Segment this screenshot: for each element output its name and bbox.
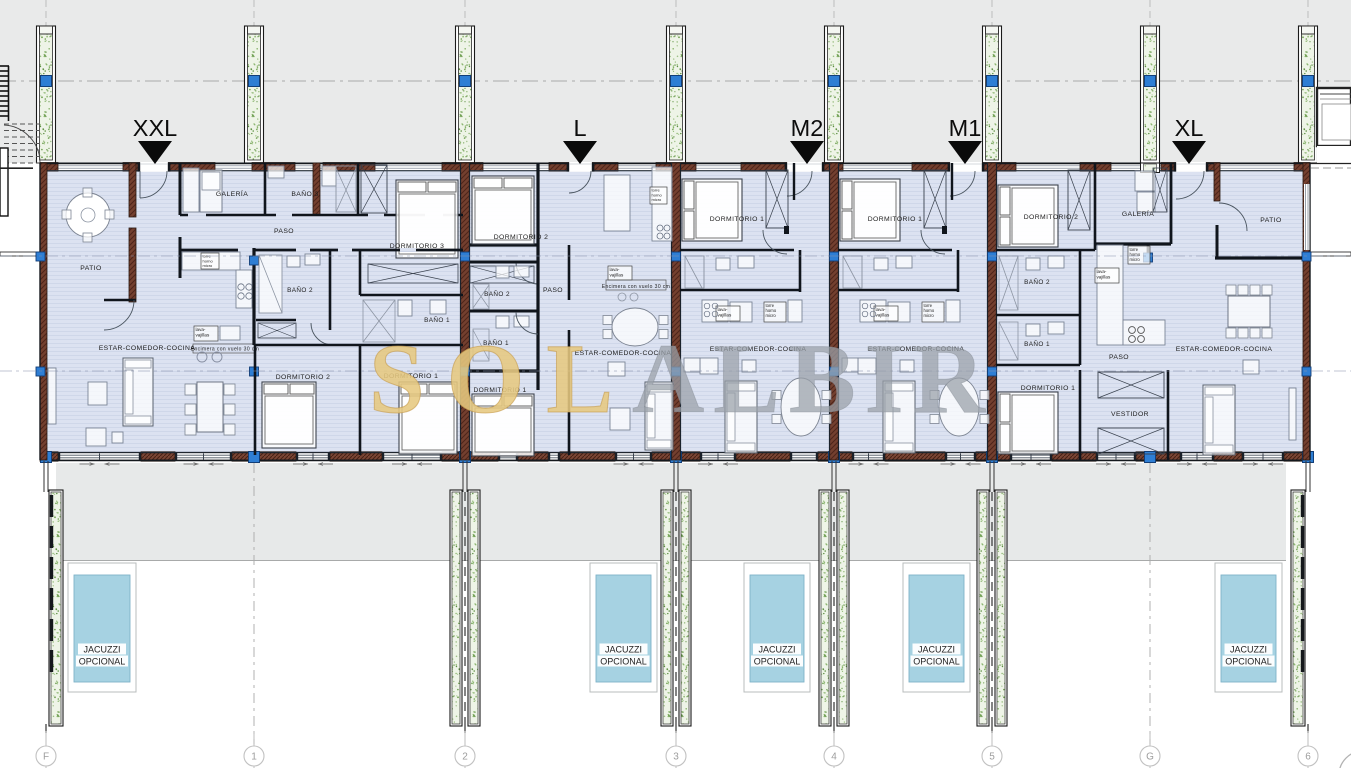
svg-text:L: L xyxy=(573,115,586,141)
svg-text:PATIO: PATIO xyxy=(1260,217,1281,224)
svg-text:DORMITORIO 1: DORMITORIO 1 xyxy=(1021,385,1076,392)
svg-text:6: 6 xyxy=(1305,752,1311,763)
svg-text:3: 3 xyxy=(673,752,679,763)
svg-text:DORMITORIO 2: DORMITORIO 2 xyxy=(1024,214,1079,221)
svg-text:BAÑO 2: BAÑO 2 xyxy=(484,289,510,298)
svg-text:G: G xyxy=(1146,752,1154,763)
svg-text:JACUZZI: JACUZZI xyxy=(605,645,642,655)
svg-text:5: 5 xyxy=(989,752,995,763)
svg-text:Encimera con vuelo 30 cm: Encimera con vuelo 30 cm xyxy=(602,284,671,290)
svg-text:XL: XL xyxy=(1175,115,1204,141)
svg-text:PATIO: PATIO xyxy=(80,265,101,272)
svg-text:lava-: lava- xyxy=(610,267,620,272)
svg-text:1: 1 xyxy=(251,752,257,763)
svg-text:XXL: XXL xyxy=(133,115,177,141)
svg-text:lava-: lava- xyxy=(196,327,206,332)
svg-text:DORMITORIO 2: DORMITORIO 2 xyxy=(494,234,549,241)
svg-text:ESTAR-COMEDOR-COCINA: ESTAR-COMEDOR-COCINA xyxy=(1176,346,1273,353)
svg-text:micro: micro xyxy=(766,313,777,318)
svg-text:F: F xyxy=(43,752,49,763)
svg-text:2: 2 xyxy=(462,752,468,763)
svg-text:M1: M1 xyxy=(949,115,982,141)
svg-text:vajillas: vajillas xyxy=(876,313,890,318)
svg-text:DORMITORIO 2: DORMITORIO 2 xyxy=(276,374,331,381)
svg-text:vajillas: vajillas xyxy=(718,313,732,318)
svg-text:PASO: PASO xyxy=(543,287,563,294)
svg-text:Encimera con vuelo 30 cm: Encimera con vuelo 30 cm xyxy=(191,347,260,353)
svg-text:micro: micro xyxy=(203,263,214,268)
svg-text:vajillas: vajillas xyxy=(1097,275,1111,280)
svg-text:micro: micro xyxy=(924,313,935,318)
svg-text:OPCIONAL: OPCIONAL xyxy=(600,657,647,667)
svg-text:4: 4 xyxy=(831,752,837,763)
svg-text:VESTIDOR: VESTIDOR xyxy=(1111,411,1149,418)
svg-text:M2: M2 xyxy=(791,115,824,141)
svg-text:micro: micro xyxy=(652,197,663,202)
svg-text:micro: micro xyxy=(1130,257,1141,262)
svg-text:BAÑO 2: BAÑO 2 xyxy=(287,285,313,294)
svg-text:PASO: PASO xyxy=(274,228,294,235)
svg-text:vajillas: vajillas xyxy=(196,333,210,338)
svg-text:GALERÍA: GALERÍA xyxy=(1122,209,1154,218)
svg-text:DORMITORIO 1: DORMITORIO 1 xyxy=(710,216,765,223)
svg-text:lava-: lava- xyxy=(1097,269,1107,274)
svg-text:JACUZZI: JACUZZI xyxy=(759,645,796,655)
svg-text:BAÑO 2: BAÑO 2 xyxy=(1024,277,1050,286)
svg-text:GALERÍA: GALERÍA xyxy=(216,189,248,198)
svg-text:vajillas: vajillas xyxy=(610,273,624,278)
svg-text:BAÑO 1: BAÑO 1 xyxy=(1024,339,1050,348)
svg-text:OPCIONAL: OPCIONAL xyxy=(913,657,960,667)
svg-text:BAÑO 3: BAÑO 3 xyxy=(291,189,318,198)
svg-text:lava-: lava- xyxy=(718,307,728,312)
svg-text:ESTAR-COMEDOR-COCINA: ESTAR-COMEDOR-COCINA xyxy=(99,345,196,352)
svg-text:PASO: PASO xyxy=(1109,354,1129,361)
svg-text:JACUZZI: JACUZZI xyxy=(918,645,955,655)
svg-text:lava-: lava- xyxy=(876,307,886,312)
svg-text:JACUZZI: JACUZZI xyxy=(84,645,121,655)
svg-text:OPCIONAL: OPCIONAL xyxy=(1225,657,1272,667)
svg-text:DORMITORIO 1: DORMITORIO 1 xyxy=(868,216,923,223)
svg-text:OPCIONAL: OPCIONAL xyxy=(79,657,126,667)
svg-text:SOL: SOL xyxy=(369,323,635,434)
svg-text:JACUZZI: JACUZZI xyxy=(1230,645,1267,655)
svg-text:OPCIONAL: OPCIONAL xyxy=(754,657,801,667)
svg-text:ALBIR: ALBIR xyxy=(632,323,994,434)
